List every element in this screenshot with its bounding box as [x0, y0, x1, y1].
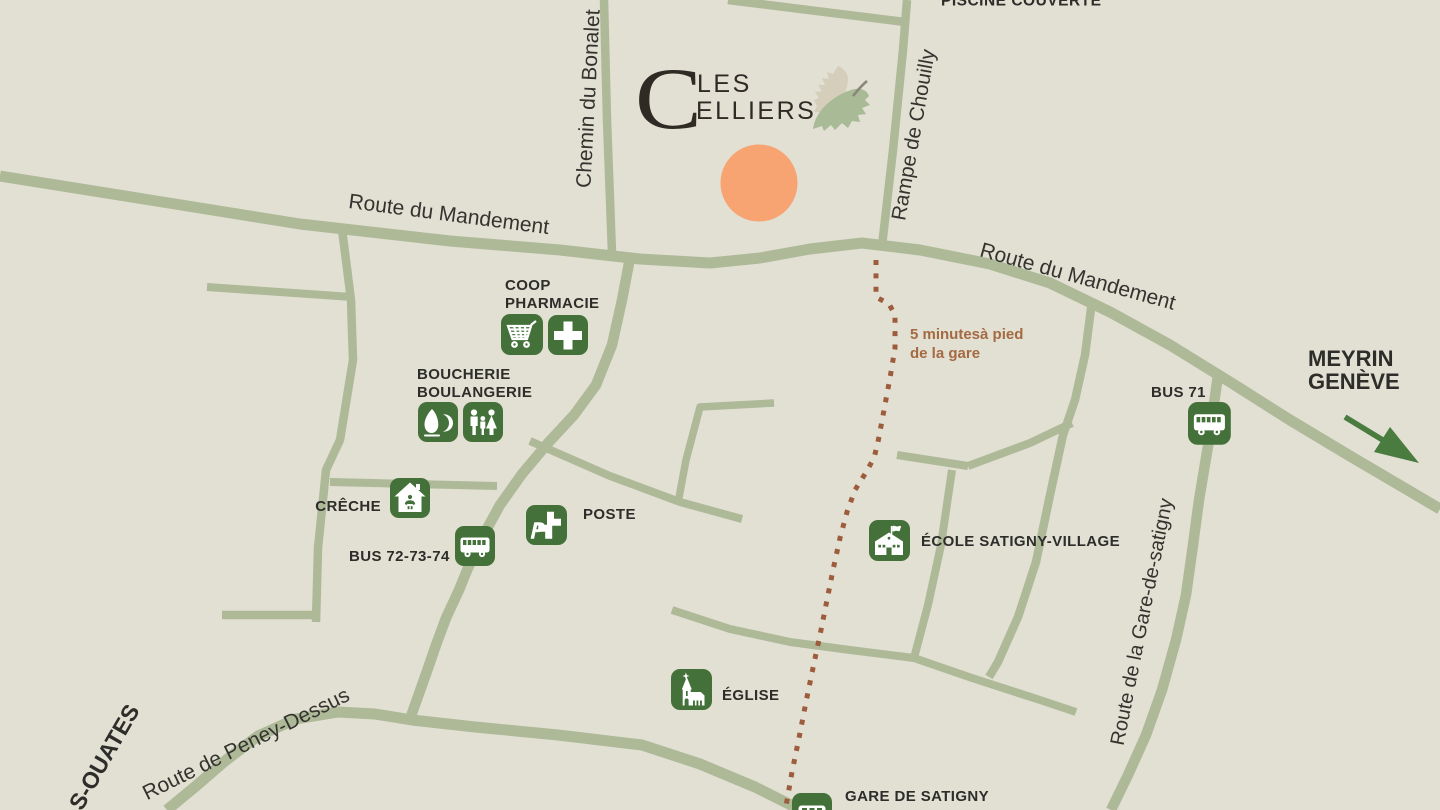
svg-text:BOULANGERIE: BOULANGERIE: [417, 384, 532, 401]
svg-text:COOP: COOP: [505, 277, 551, 294]
svg-text:GENÈVE: GENÈVE: [1308, 369, 1400, 394]
svg-text:POSTE: POSTE: [583, 506, 636, 523]
svg-text:CRÊCHE: CRÊCHE: [315, 497, 381, 515]
svg-text:GARE DE SATIGNY: GARE DE SATIGNY: [845, 788, 989, 805]
svg-text:MEYRIN: MEYRIN: [1308, 346, 1394, 371]
svg-text:BOUCHERIE: BOUCHERIE: [417, 366, 511, 383]
svg-text:C: C: [635, 51, 702, 148]
svg-text:PISCINE COUVERTE: PISCINE COUVERTE: [941, 0, 1101, 10]
svg-text:BUS 72-73-74: BUS 72-73-74: [349, 548, 450, 565]
svg-text:ÉCOLE SATIGNY-VILLAGE: ÉCOLE SATIGNY-VILLAGE: [921, 533, 1120, 550]
svg-text:ÉGLISE: ÉGLISE: [722, 687, 779, 704]
svg-text:de la gare: de la gare: [910, 345, 980, 362]
svg-text:PHARMACIE: PHARMACIE: [505, 295, 599, 312]
svg-text:BUS 71: BUS 71: [1151, 384, 1206, 401]
svg-text:ELLIERS: ELLIERS: [696, 97, 816, 125]
svg-text:LES: LES: [697, 70, 752, 98]
svg-text:5 minutesà pied: 5 minutesà pied: [910, 326, 1023, 343]
